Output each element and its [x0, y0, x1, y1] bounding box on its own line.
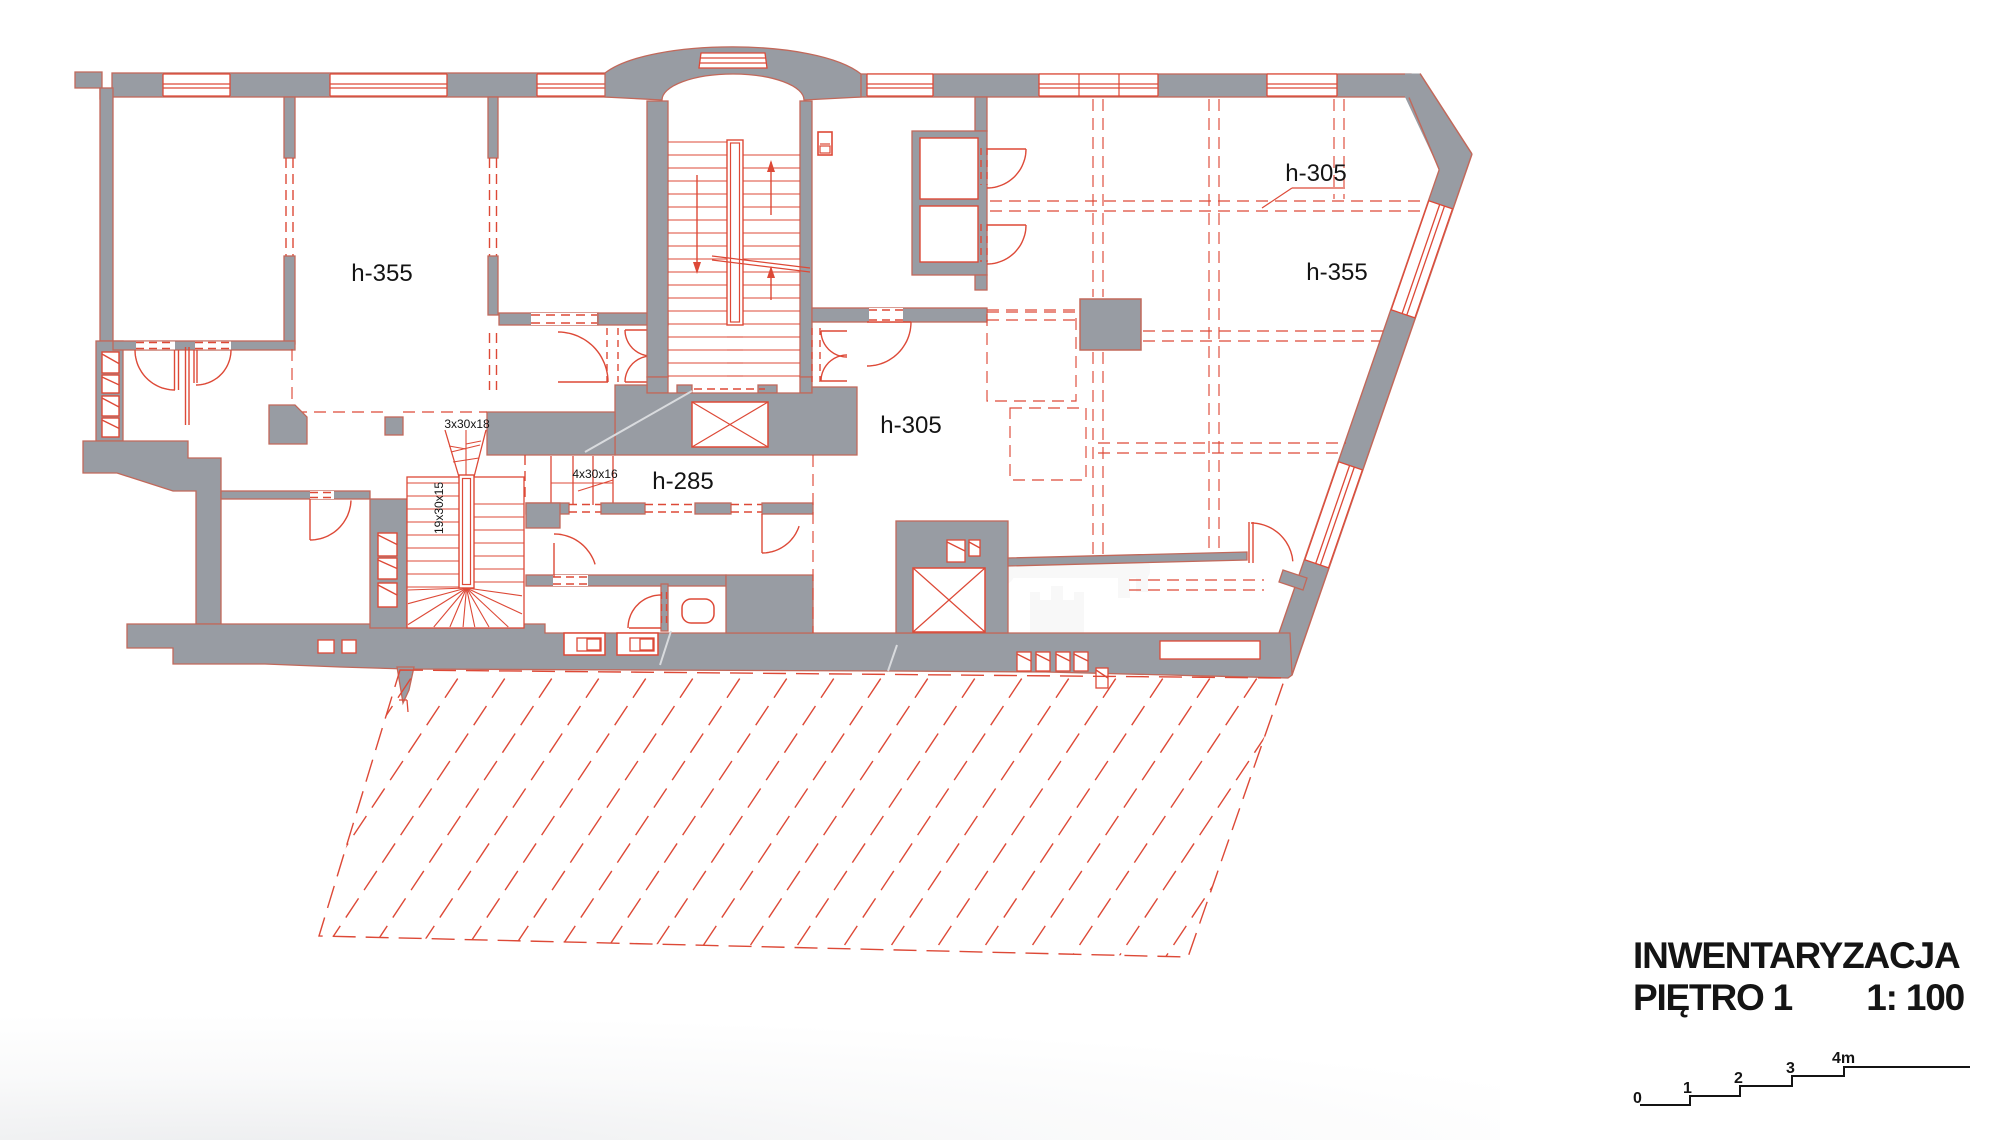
svg-text:h-305: h-305 [1285, 160, 1346, 187]
svg-text:1: 100: 1: 100 [1866, 977, 1964, 1018]
svg-text:19x30x15: 19x30x15 [432, 482, 446, 534]
svg-text:h-285: h-285 [652, 468, 713, 495]
svg-text:h-355: h-355 [351, 260, 412, 287]
svg-text:4x30x16: 4x30x16 [572, 467, 618, 481]
svg-text:3x30x18: 3x30x18 [444, 417, 490, 431]
svg-text:2: 2 [1734, 1070, 1743, 1087]
svg-text:0: 0 [1633, 1090, 1642, 1107]
svg-text:1: 1 [1683, 1080, 1692, 1097]
svg-text:PIĘTRO 1: PIĘTRO 1 [1633, 977, 1793, 1018]
svg-text:3: 3 [1786, 1060, 1795, 1077]
svg-text:h-355: h-355 [1306, 259, 1367, 286]
svg-text:INWENTARYZACJA: INWENTARYZACJA [1633, 935, 1960, 976]
svg-text:4m: 4m [1832, 1050, 1855, 1067]
svg-text:h-305: h-305 [880, 412, 941, 439]
